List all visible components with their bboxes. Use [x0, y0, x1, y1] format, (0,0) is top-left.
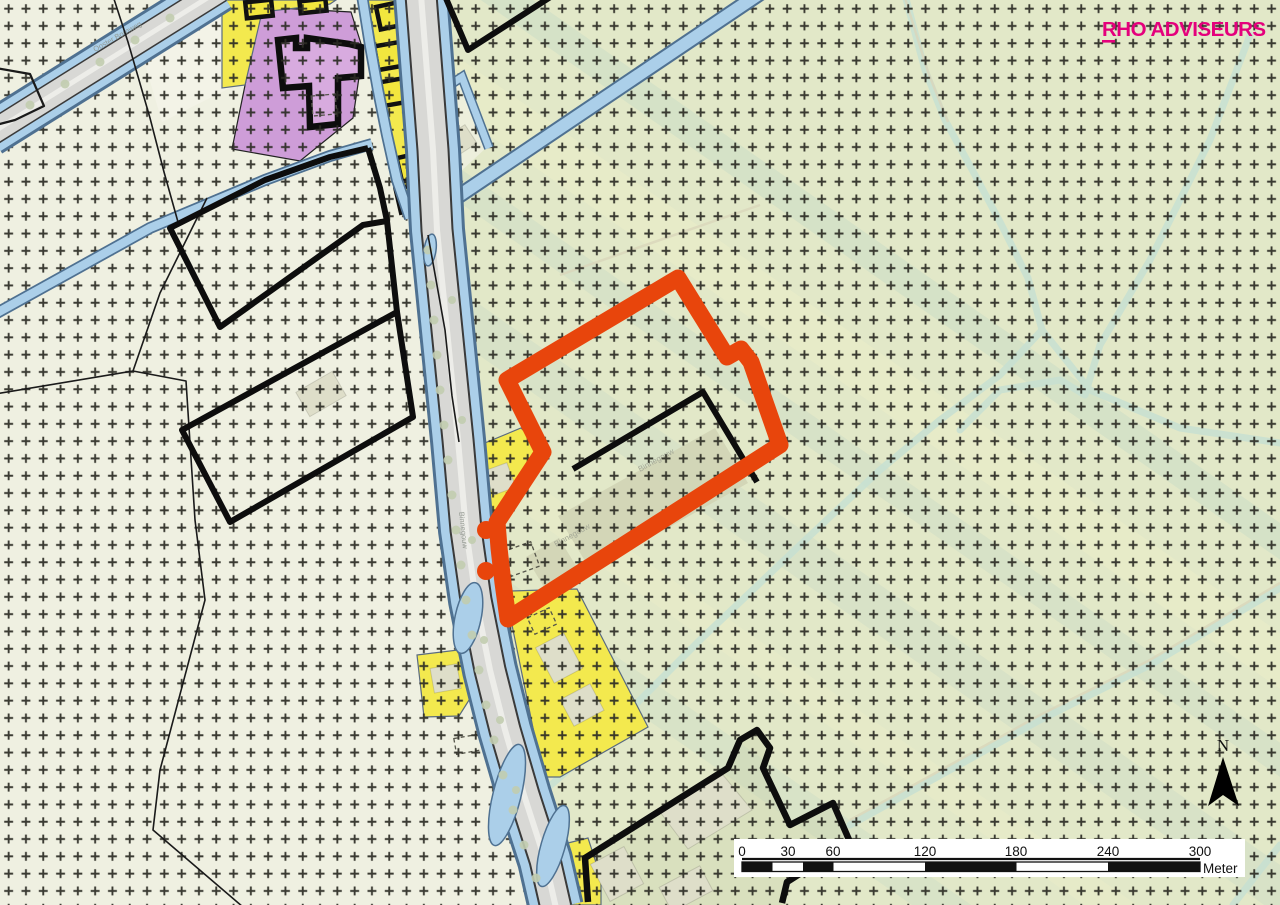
logo: RHO ADVISEURS: [1102, 18, 1266, 43]
scale-tick-label: 180: [1005, 844, 1028, 859]
zoning-map: Binnegouw Binnegouw: [0, 0, 1280, 905]
zoning-map-canvas: Binnegouw Binnegouw: [0, 0, 1280, 905]
plan-boundary-tab: [477, 562, 495, 580]
scale-bar: 0 30 60 120 180 240 300 Meter: [734, 839, 1245, 877]
scale-tick-label: 60: [825, 844, 840, 859]
north-label: N: [1217, 736, 1229, 755]
logo-text: RHO ADVISEURS: [1102, 18, 1266, 41]
scale-tick-label: 120: [914, 844, 937, 859]
logo-underscore: [1102, 40, 1115, 43]
scale-bar-segments: [742, 862, 1200, 872]
scale-tick-label: 0: [738, 844, 746, 859]
scale-tick-label: 240: [1097, 844, 1120, 859]
scale-tick-label: 300: [1189, 844, 1212, 859]
scale-tick-label: 30: [780, 844, 795, 859]
scale-unit-label: Meter: [1203, 861, 1238, 876]
